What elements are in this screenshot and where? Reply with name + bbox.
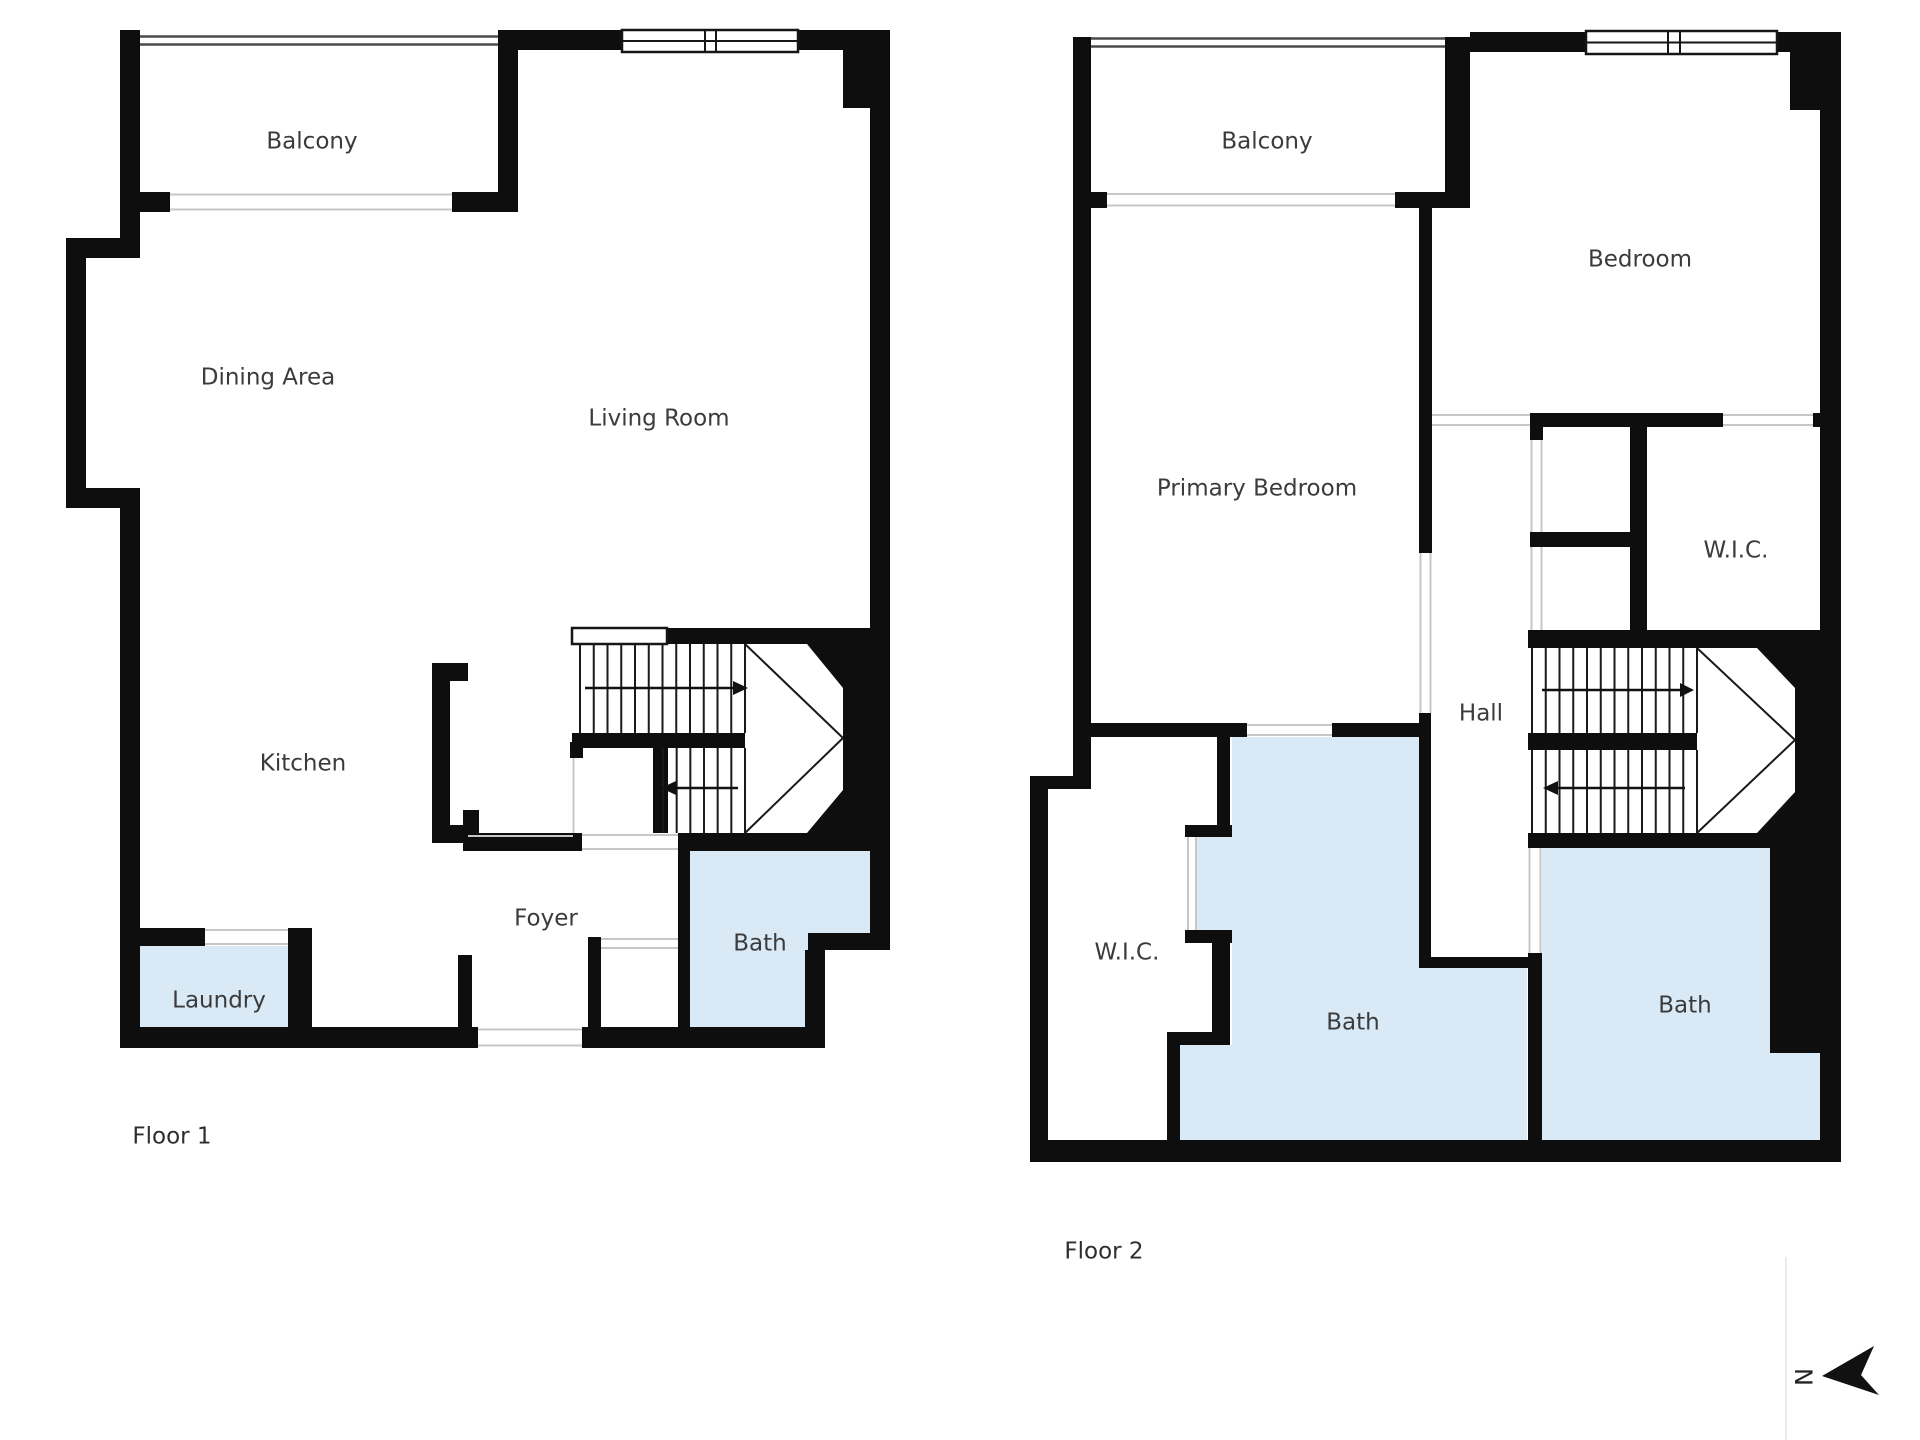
window-icon-f2: [1586, 31, 1777, 54]
balcony-railing-f2: [1091, 39, 1445, 47]
room-label-balcony-f1: Balcony: [266, 129, 357, 155]
stairs-f1: [572, 628, 843, 833]
bath2-main-fill: [1180, 737, 1527, 1140]
floorplan-page: Balcony Dining Area Living Room Kitchen …: [0, 0, 1920, 1440]
floor1-plan: Balcony Dining Area Living Room Kitchen …: [66, 30, 890, 1150]
room-label-living-room: Living Room: [588, 406, 729, 432]
floor2-title: Floor 2: [1064, 1239, 1143, 1265]
stairs-f1-header-bar: [572, 628, 667, 644]
room-label-wic-upper: W.I.C.: [1704, 538, 1769, 564]
room-label-bath-f1: Bath: [733, 931, 786, 957]
room-label-laundry: Laundry: [172, 988, 266, 1014]
room-label-bath-main: Bath: [1326, 1010, 1379, 1036]
floor1-title: Floor 1: [132, 1124, 211, 1150]
room-label-foyer: Foyer: [514, 906, 578, 932]
room-label-bath-second: Bath: [1658, 993, 1711, 1019]
north-label: N: [1789, 1368, 1817, 1386]
room-label-primary-bedroom: Primary Bedroom: [1157, 476, 1357, 502]
room-label-hall: Hall: [1459, 701, 1503, 727]
floor2-plan: Balcony Bedroom Primary Bedroom W.I.C. H…: [1030, 31, 1841, 1265]
room-label-bedroom: Bedroom: [1588, 247, 1692, 273]
room-label-wic-lower: W.I.C.: [1095, 940, 1160, 966]
floorplan-drawing: Balcony Dining Area Living Room Kitchen …: [0, 0, 1920, 1440]
room-label-balcony-f2: Balcony: [1221, 129, 1312, 155]
north-indicator: N: [1786, 1257, 1879, 1440]
window-icon-f1: [622, 30, 798, 52]
north-arrow-icon: [1822, 1346, 1879, 1395]
room-label-kitchen: Kitchen: [260, 751, 346, 777]
laundry-fill: [140, 946, 288, 1027]
floor1-openings: [170, 192, 678, 1048]
room-label-dining-area: Dining Area: [201, 365, 336, 391]
balcony-railing-f1: [140, 37, 498, 45]
